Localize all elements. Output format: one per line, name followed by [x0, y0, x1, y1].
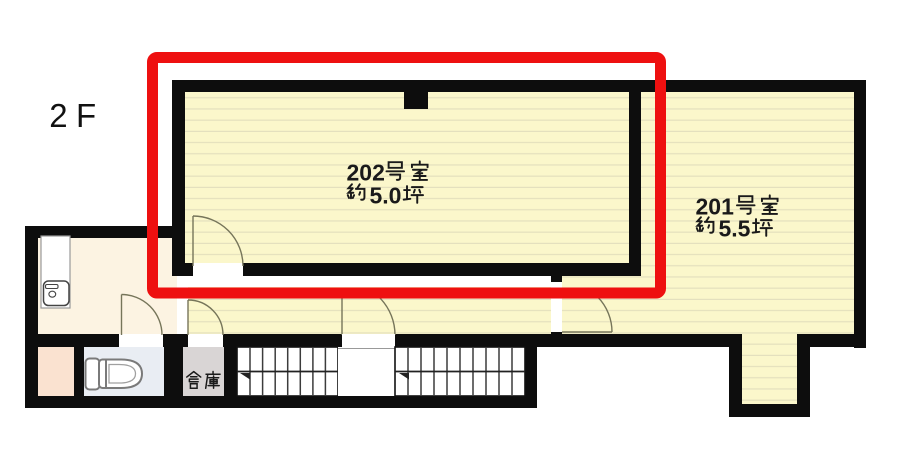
svg-text:5.0: 5.0: [370, 182, 402, 208]
svg-text:5.5: 5.5: [719, 215, 751, 241]
